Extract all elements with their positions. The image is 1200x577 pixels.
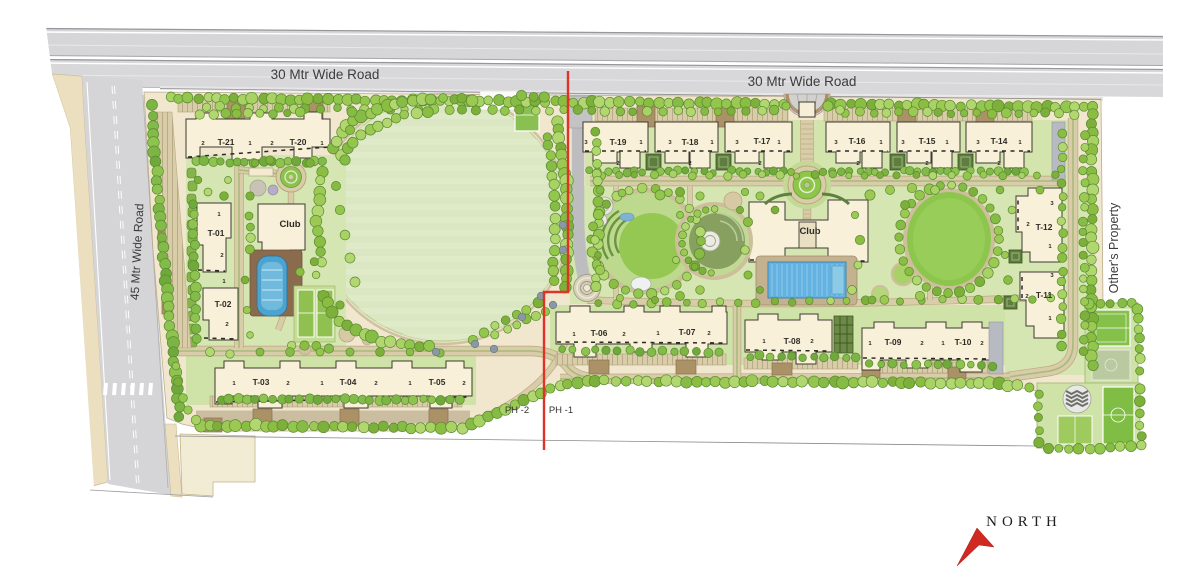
svg-text:T-08: T-08 bbox=[784, 336, 801, 346]
svg-text:T-21: T-21 bbox=[218, 137, 235, 147]
svg-text:PH -2: PH -2 bbox=[505, 405, 529, 416]
svg-text:T-01: T-01 bbox=[208, 228, 225, 238]
svg-text:PH -1: PH -1 bbox=[549, 405, 573, 416]
svg-text:T-17: T-17 bbox=[754, 136, 771, 146]
svg-text:30 Mtr Wide Road: 30 Mtr Wide Road bbox=[748, 74, 857, 89]
svg-text:Other's Property: Other's Property bbox=[1107, 202, 1121, 293]
svg-text:T-12: T-12 bbox=[1036, 222, 1053, 232]
svg-text:T-03: T-03 bbox=[253, 377, 270, 387]
svg-text:T-19: T-19 bbox=[610, 137, 627, 147]
svg-text:T-04: T-04 bbox=[340, 377, 357, 387]
svg-text:T-02: T-02 bbox=[215, 299, 232, 309]
svg-text:T-14: T-14 bbox=[991, 136, 1008, 146]
svg-text:Club: Club bbox=[279, 219, 300, 230]
svg-text:T-10: T-10 bbox=[955, 337, 972, 347]
svg-text:T-05: T-05 bbox=[429, 377, 446, 387]
svg-text:NORTH: NORTH bbox=[986, 514, 1062, 530]
svg-text:T-15: T-15 bbox=[919, 136, 936, 146]
svg-text:T-09: T-09 bbox=[885, 337, 902, 347]
svg-text:30 Mtr Wide Road: 30 Mtr Wide Road bbox=[271, 67, 380, 82]
svg-text:T-11: T-11 bbox=[1036, 290, 1053, 300]
svg-text:T-16: T-16 bbox=[849, 136, 866, 146]
svg-text:T-20: T-20 bbox=[290, 137, 307, 147]
svg-text:T-18: T-18 bbox=[682, 137, 699, 147]
svg-text:T-07: T-07 bbox=[679, 327, 696, 337]
svg-text:T-06: T-06 bbox=[591, 328, 608, 338]
svg-text:Club: Club bbox=[799, 226, 820, 237]
